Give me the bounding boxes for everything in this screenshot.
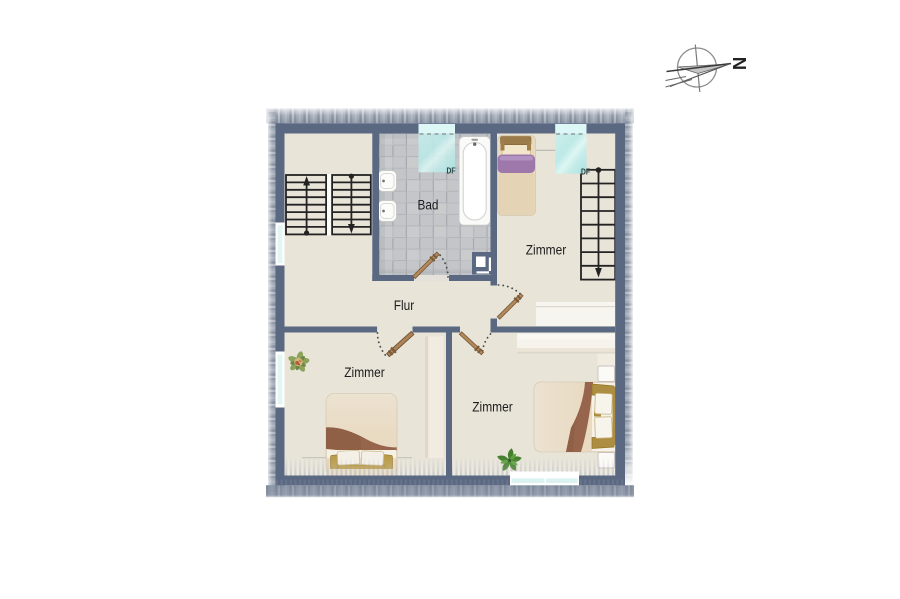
svg-text:Zimmer: Zimmer bbox=[472, 399, 513, 415]
svg-text:DF: DF bbox=[447, 166, 456, 175]
svg-text:Flur: Flur bbox=[394, 297, 415, 313]
svg-text:DF: DF bbox=[581, 167, 590, 176]
svg-text:Zimmer: Zimmer bbox=[526, 242, 567, 258]
svg-text:Bad: Bad bbox=[418, 197, 439, 213]
svg-text:Zimmer: Zimmer bbox=[344, 364, 385, 380]
svg-text:N: N bbox=[729, 57, 750, 70]
